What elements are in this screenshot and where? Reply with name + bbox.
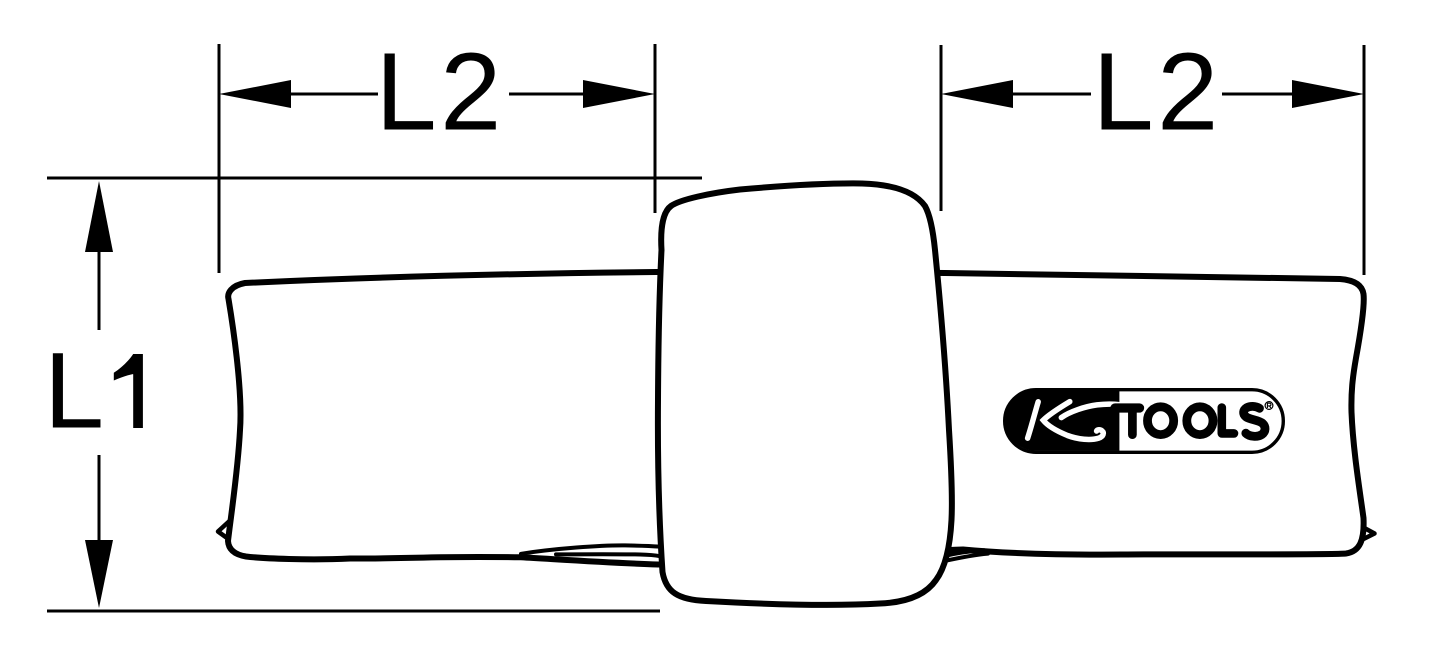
svg-text:L2: L2: [1093, 31, 1222, 154]
svg-text:L: L: [44, 330, 104, 451]
svg-text:L2: L2: [376, 31, 505, 154]
